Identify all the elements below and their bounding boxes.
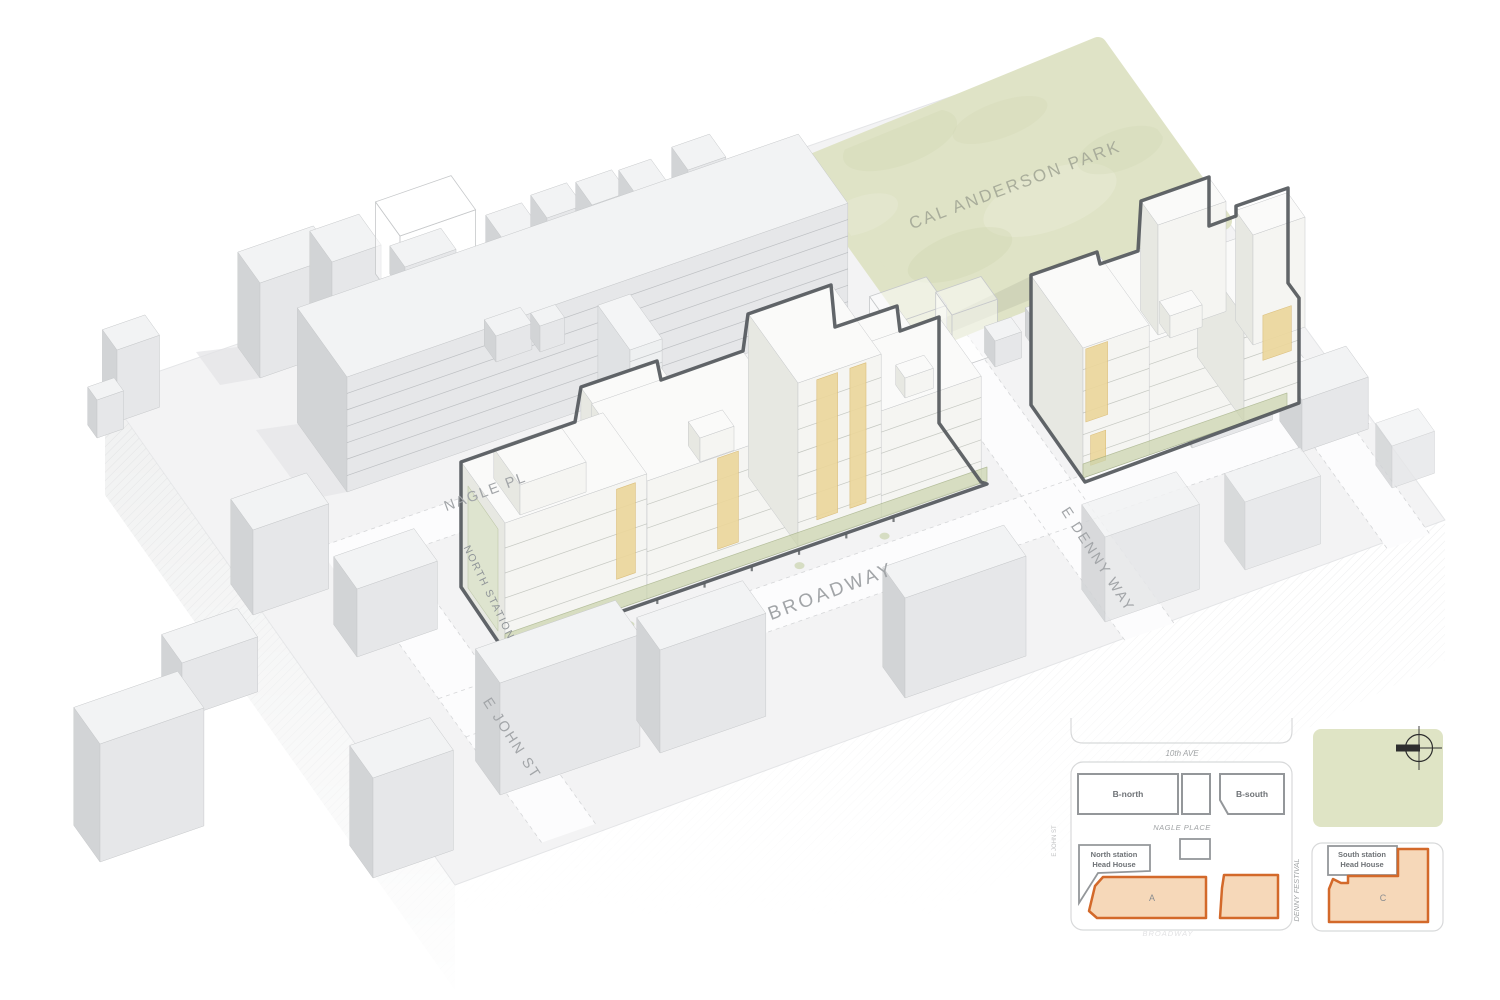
keyplan-10th-ave-label: 10th AVE: [1165, 749, 1199, 758]
keyplan-site-a-south-parcel: [1220, 875, 1278, 918]
site-rendering-page: CAL ANDERSON PARK NAGLE PL BROADWAY E JO…: [0, 0, 1500, 1000]
keyplan-site-a-label: A: [1149, 893, 1155, 903]
keyplan-north-station-label-2: Head House: [1092, 860, 1135, 869]
keyplan-north-station-label-1: North station: [1091, 850, 1138, 859]
keyplan-b-south-label: B-south: [1236, 789, 1268, 799]
axonometric-site-rendering: CAL ANDERSON PARK NAGLE PL BROADWAY E JO…: [0, 0, 1500, 1000]
keyplan-nagle-place-label: NAGLE PLACE: [1153, 823, 1211, 832]
keyplan-small-parcel: [1180, 839, 1210, 859]
keyplan-b-north-label: B-north: [1113, 789, 1144, 799]
keyplan-site-c-label: C: [1380, 893, 1387, 903]
keyplan-park-square: [1313, 729, 1443, 827]
keyplan-south-station-label-2: Head House: [1340, 860, 1383, 869]
keyplan-small-building: [1182, 774, 1210, 814]
keyplan-denny-festival-label: DENNY FESTIVAL: [1292, 858, 1301, 921]
keyplan-site-a-parcel: [1089, 877, 1206, 918]
keyplan-broadway-faint-label: BROADWAY: [1142, 929, 1193, 938]
keyplan-e-john-tiny-label: E JOHN ST: [1052, 825, 1058, 857]
keyplan-south-station-label-1: South station: [1338, 850, 1386, 859]
